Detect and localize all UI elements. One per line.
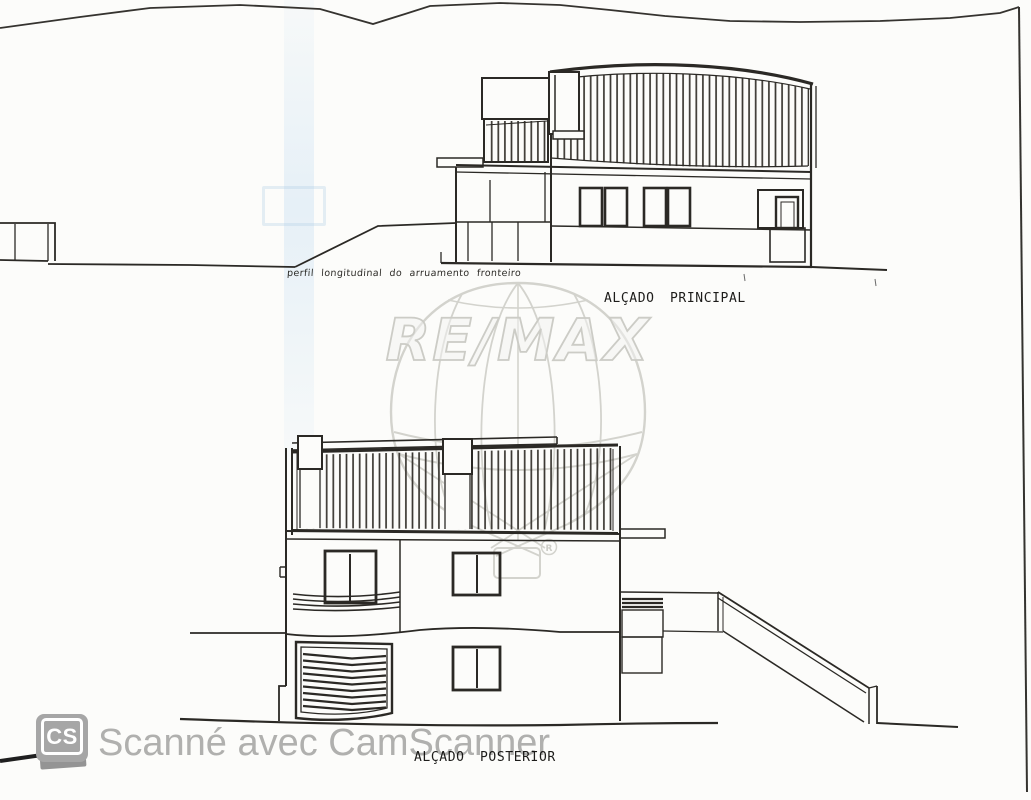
main-elevation-drawing (437, 65, 887, 270)
camscanner-caption: Scanné avec CamScanner (98, 722, 550, 765)
drawing-canvas: RE/MAX R (0, 0, 1031, 800)
street-profile-label: perfil longitudinal do arruamento fronte… (287, 268, 522, 279)
rear-elevation-drawing (180, 436, 958, 727)
camscanner-badge-text: CS (46, 724, 78, 750)
scanned-architectural-drawing: RE/MAX R (0, 0, 1031, 800)
camscanner-badge: CS (36, 714, 88, 762)
main-elevation-label: ALÇADO PRINCIPAL (604, 291, 746, 306)
street-profile-drawing (0, 223, 456, 267)
remax-watermark-text: RE/MAX (386, 306, 652, 374)
remax-registered-mark: R (546, 544, 553, 554)
